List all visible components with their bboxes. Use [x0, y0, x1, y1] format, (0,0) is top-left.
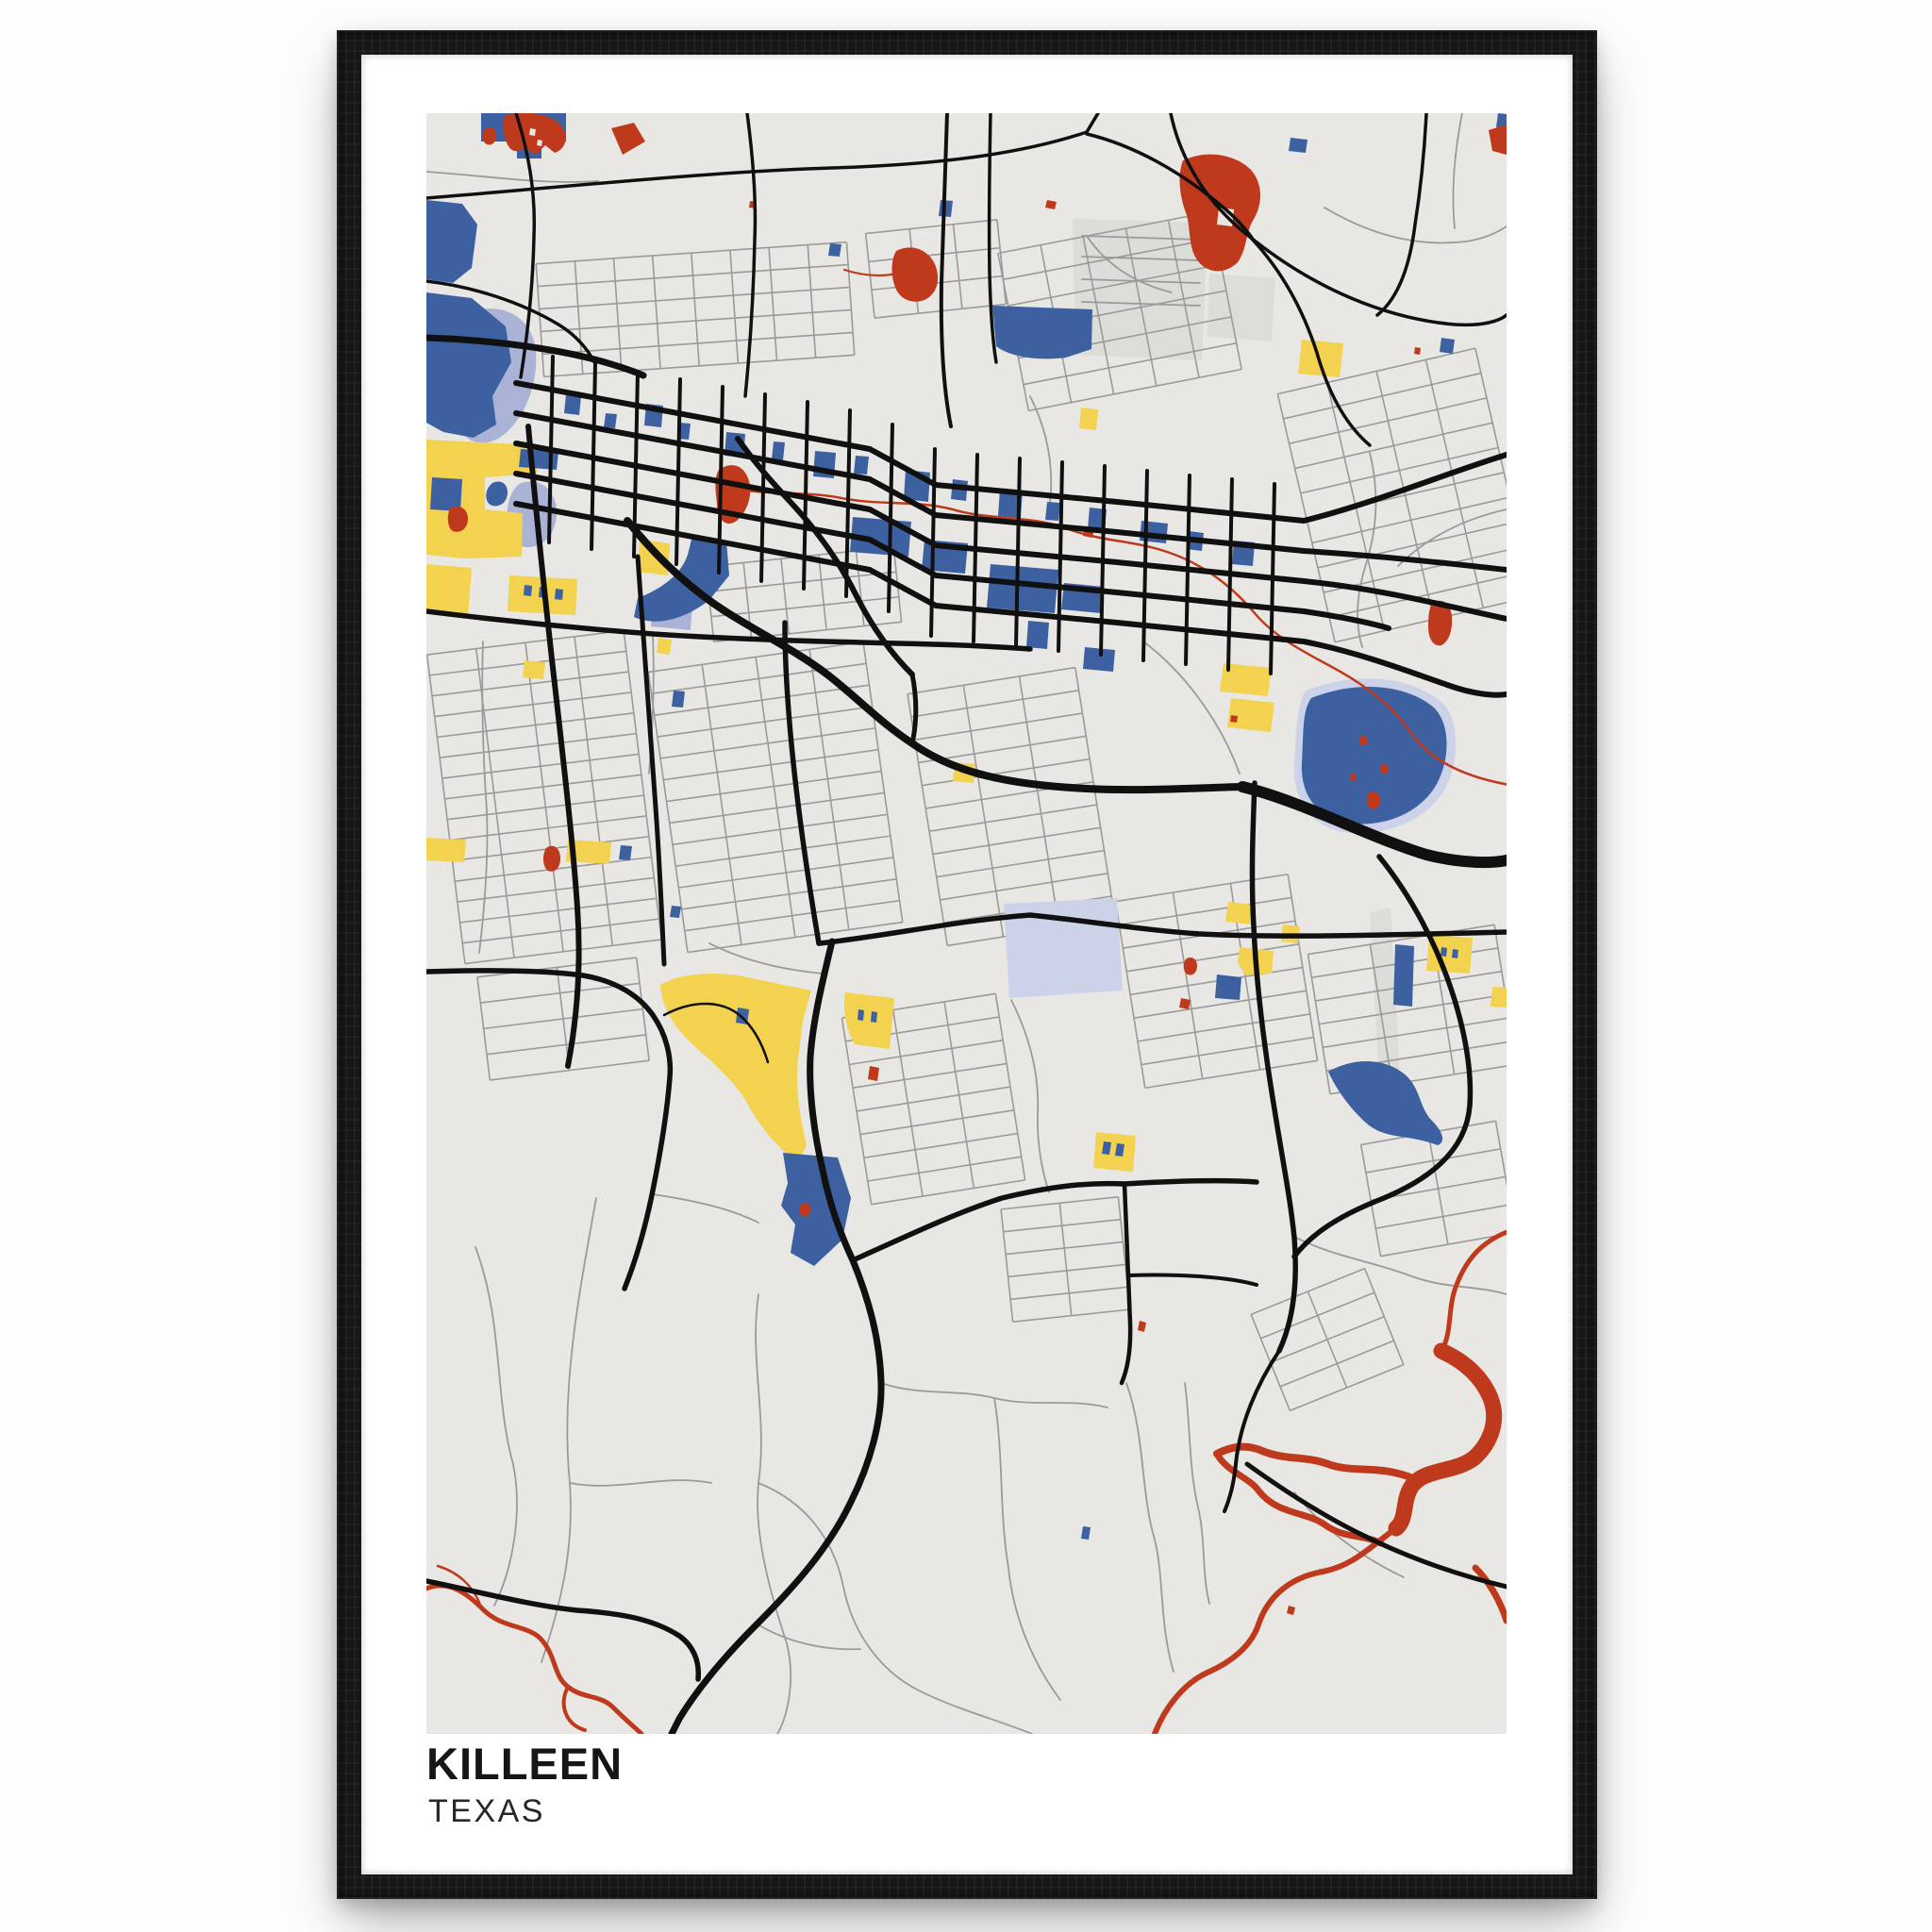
- map-canvas: [426, 113, 1507, 1734]
- map-art: [426, 113, 1507, 1734]
- poster-mat: KILLEEN TEXAS: [361, 55, 1573, 1874]
- poster-subtitle: TEXAS: [428, 1795, 545, 1827]
- poster-title: KILLEEN: [426, 1741, 623, 1786]
- poster-frame: KILLEEN TEXAS: [337, 30, 1597, 1899]
- product-page: KILLEEN TEXAS: [0, 0, 1932, 1932]
